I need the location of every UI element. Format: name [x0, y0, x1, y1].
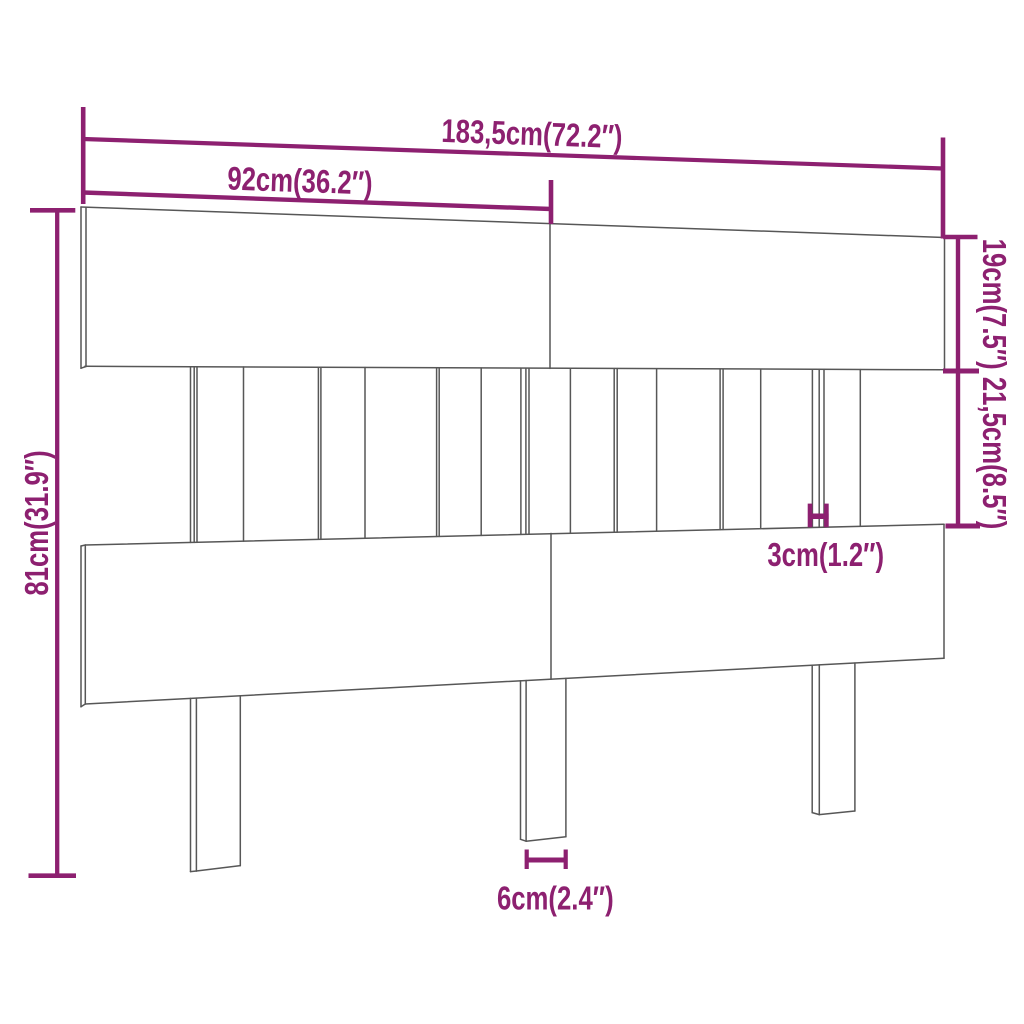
- svg-text:3cm(1.2″): 3cm(1.2″): [767, 537, 884, 574]
- svg-text:81cm(31.9″): 81cm(31.9″): [19, 450, 56, 595]
- svg-text:92cm(36.2″): 92cm(36.2″): [227, 160, 374, 202]
- svg-text:183,5cm(72.2″): 183,5cm(72.2″): [441, 113, 623, 156]
- svg-text:19cm(7.5″) 21,5cm(8.5″): 19cm(7.5″) 21,5cm(8.5″): [975, 239, 1012, 530]
- svg-text:6cm(2.4″): 6cm(2.4″): [497, 881, 614, 918]
